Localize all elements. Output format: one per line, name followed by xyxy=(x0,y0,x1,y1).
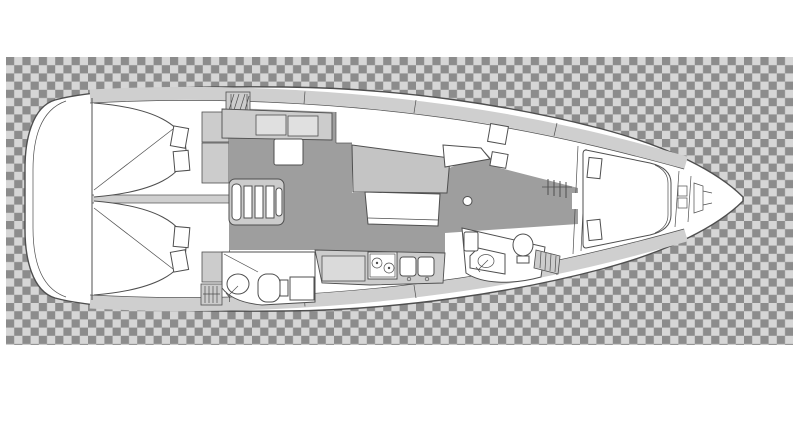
screenshot-canvas xyxy=(0,0,800,446)
saloon-bench xyxy=(365,192,440,226)
fridge-box xyxy=(274,139,303,165)
vberth-pillow-1 xyxy=(587,157,602,178)
bench-seat xyxy=(365,192,440,226)
stove-burner-1-center xyxy=(376,262,378,264)
forward-head-seat xyxy=(464,232,478,251)
aft-head-cabinet xyxy=(290,277,314,300)
aft-berth-bottom-pillow-2 xyxy=(173,226,190,247)
companionway-steps xyxy=(229,179,284,225)
galley xyxy=(315,250,445,285)
vberth-pillow-2 xyxy=(587,219,602,240)
sink-basin-1 xyxy=(400,257,416,276)
locker-top-2 xyxy=(202,143,229,183)
cabinet-door-2 xyxy=(288,116,318,136)
aft-berth-bottom-pillow-1 xyxy=(170,250,188,272)
stove-burner-2-center xyxy=(388,267,390,269)
step-3 xyxy=(266,186,274,218)
aft-cabins-divider xyxy=(92,195,230,203)
aft-head-locker-hatched xyxy=(201,284,222,305)
aft-head-toilet-tank xyxy=(280,280,288,296)
aft-head-sink xyxy=(227,274,249,294)
forward-seat-2 xyxy=(490,152,508,169)
galley-stove xyxy=(368,252,397,279)
hatched-locker-box xyxy=(201,284,222,305)
step-2 xyxy=(255,186,263,218)
yacht-plan-svg xyxy=(0,0,800,446)
aft-berth-top-pillow-1 xyxy=(170,126,188,148)
step-0 xyxy=(232,184,241,220)
forward-head-toilet xyxy=(513,234,533,256)
forward-head-toilet-tank xyxy=(517,256,529,263)
cabinet-door-1 xyxy=(256,115,286,135)
step-1 xyxy=(244,186,252,218)
galley-cabinet xyxy=(322,256,365,281)
mast-post xyxy=(463,197,472,206)
aft-berth-top-pillow-2 xyxy=(173,150,190,171)
step-4 xyxy=(276,188,282,216)
sink-basin-2 xyxy=(418,257,434,276)
forward-seat-1 xyxy=(488,124,509,145)
aft-head-toilet xyxy=(258,274,280,302)
